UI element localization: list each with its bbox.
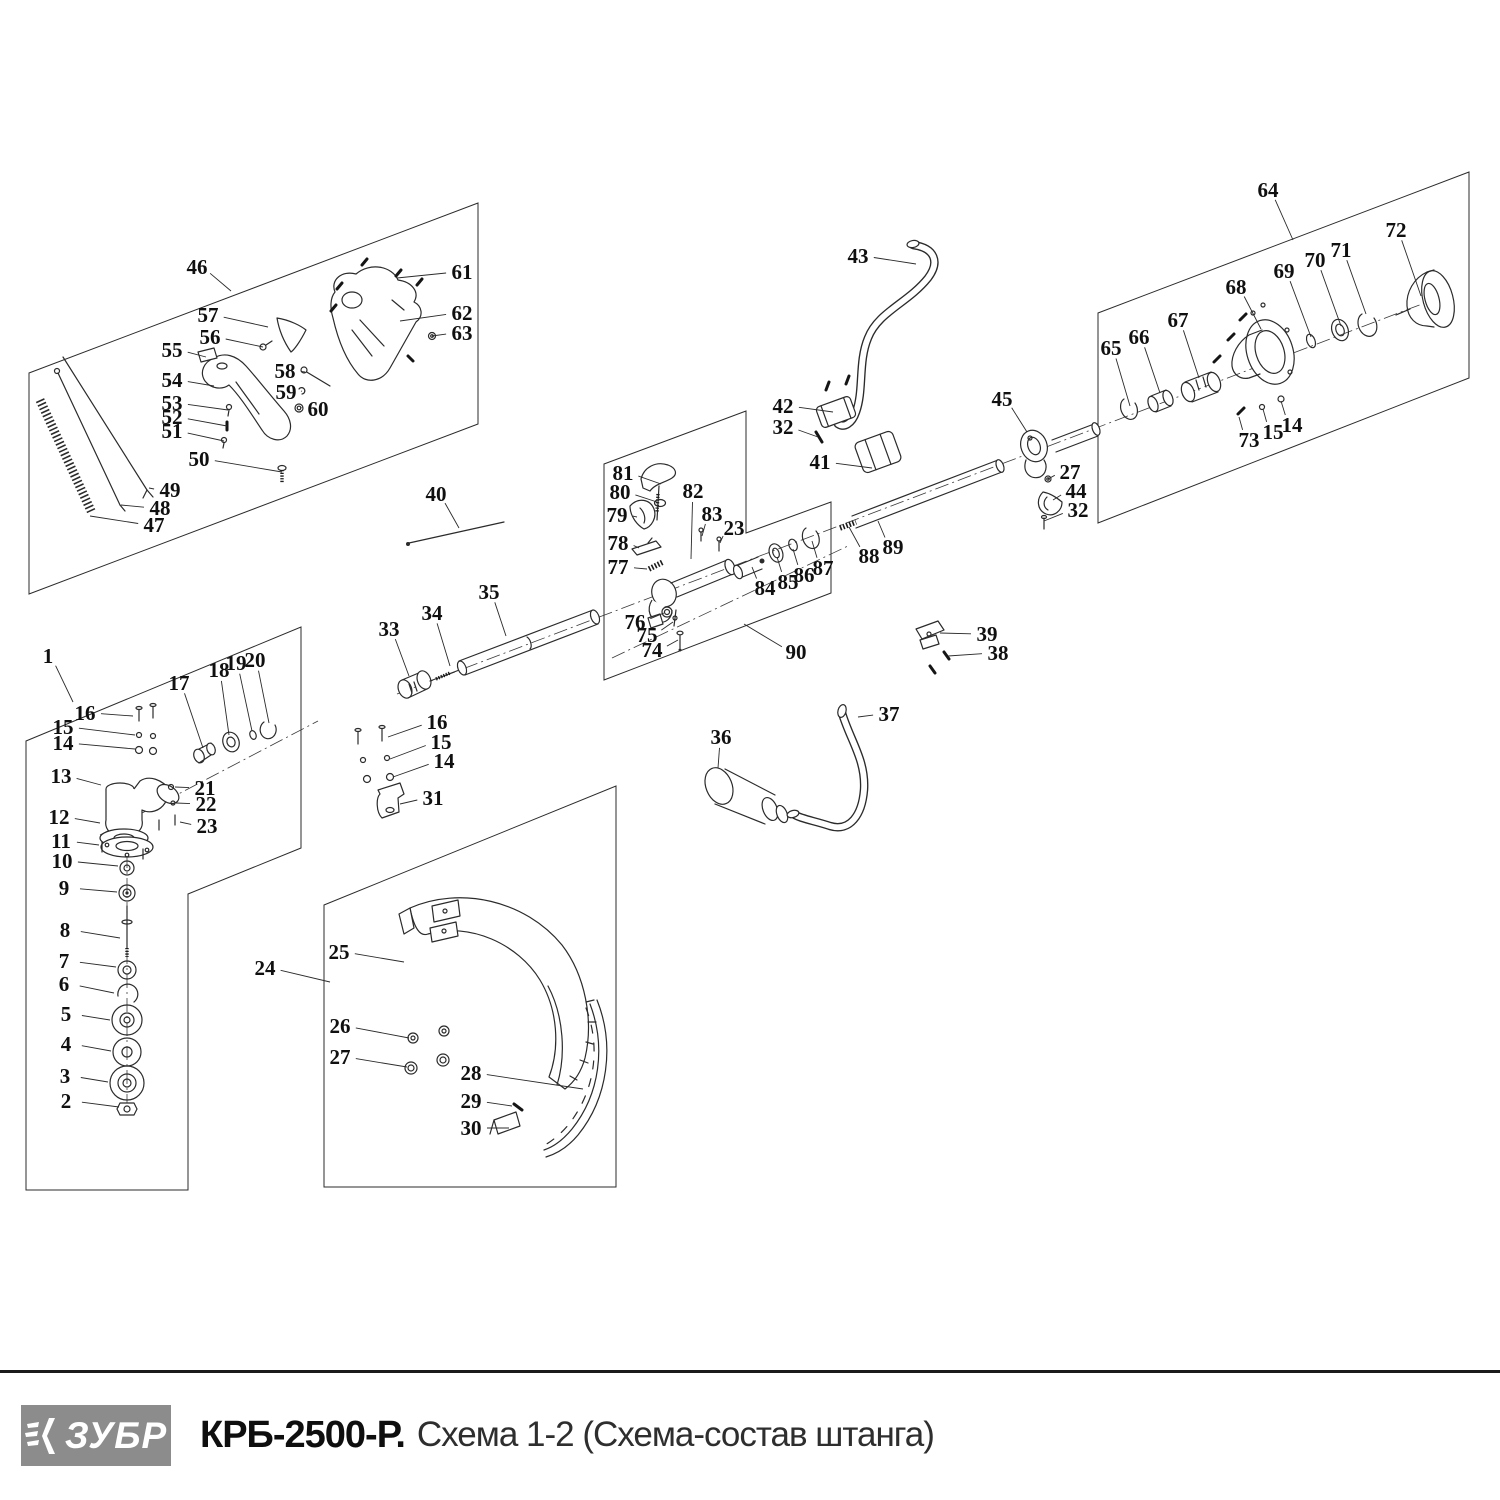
leader-line-18	[221, 681, 229, 735]
leader-line-27	[356, 1059, 407, 1067]
leader-line-23	[180, 822, 191, 824]
part-label-23: 23	[197, 814, 218, 838]
part-label-14: 14	[1282, 413, 1304, 437]
leader-line-5	[82, 1016, 110, 1021]
model-name: КРБ-2500-Р.	[200, 1414, 405, 1457]
leader-line-58	[301, 372, 305, 373]
part-label-51: 51	[162, 419, 183, 443]
leader-line-2	[82, 1102, 119, 1107]
leader-line-11	[77, 842, 99, 845]
part-label-70: 70	[1305, 248, 1326, 272]
leader-line-69	[1290, 281, 1311, 337]
part-label-2: 2	[61, 1089, 72, 1113]
leader-line-14	[79, 744, 135, 749]
leader-line-8	[81, 932, 120, 938]
part-label-82: 82	[683, 479, 704, 503]
leader-line-50	[215, 461, 282, 472]
leader-line-1	[56, 666, 73, 702]
leader-line-46	[210, 273, 231, 291]
leader-line-40	[445, 503, 459, 528]
part-label-15: 15	[1263, 420, 1284, 444]
part-label-30: 30	[461, 1116, 482, 1140]
clutch-assembly-sketch	[1121, 267, 1460, 419]
part-label-90: 90	[786, 640, 807, 664]
leader-line-14	[393, 764, 429, 777]
leader-line-61	[397, 273, 446, 278]
leader-line-45	[1012, 408, 1027, 432]
leader-line-24	[281, 970, 330, 982]
leader-line-6	[80, 986, 114, 993]
part-label-32: 32	[1068, 498, 1089, 522]
leader-line-63	[432, 334, 446, 336]
part-label-7: 7	[59, 949, 70, 973]
leader-line-34	[437, 623, 450, 666]
part-label-19: 19	[226, 651, 247, 675]
leader-line-82	[691, 502, 693, 559]
part-label-36: 36	[711, 725, 732, 749]
part-label-41: 41	[810, 450, 831, 474]
part-label-80: 80	[610, 480, 631, 504]
part-label-25: 25	[329, 940, 350, 964]
part-label-43: 43	[848, 244, 869, 268]
leader-line-70	[1321, 270, 1341, 326]
part-label-78: 78	[608, 531, 629, 555]
part-label-6: 6	[59, 972, 70, 996]
part-label-87: 87	[813, 556, 834, 580]
part-label-69: 69	[1274, 259, 1295, 283]
part-label-84: 84	[755, 576, 777, 600]
leader-line-19	[240, 674, 252, 731]
leader-line-74	[667, 640, 678, 646]
leader-line-10	[78, 862, 118, 866]
exploded-parts-diagram: 4661576256635558545953605251504948474064…	[0, 0, 1500, 1370]
part-label-22: 22	[196, 792, 217, 816]
part-label-47: 47	[144, 513, 165, 537]
part-label-46: 46	[187, 255, 208, 279]
leader-line-43	[874, 258, 916, 265]
guard-assembly-sketch	[399, 898, 607, 1157]
leader-line-15	[79, 728, 135, 735]
part-label-40: 40	[426, 482, 447, 506]
leader-line-25	[355, 954, 404, 962]
leader-line-4	[82, 1046, 111, 1051]
leader-line-7	[80, 962, 116, 967]
part-label-77: 77	[608, 555, 629, 579]
part-label-8: 8	[60, 918, 71, 942]
part-label-56: 56	[200, 325, 221, 349]
part-label-16: 16	[75, 701, 96, 725]
leader-line-67	[1183, 330, 1199, 378]
part-label-73: 73	[1239, 428, 1260, 452]
part-label-38: 38	[988, 641, 1009, 665]
part-label-32: 32	[773, 415, 794, 439]
part-label-3: 3	[60, 1064, 71, 1088]
part-label-60: 60	[308, 397, 329, 421]
part-label-26: 26	[330, 1014, 351, 1038]
part-label-24: 24	[255, 956, 277, 980]
leader-line-38	[948, 654, 982, 656]
leader-line-66	[1145, 347, 1160, 393]
part-label-71: 71	[1331, 238, 1352, 262]
part-label-4: 4	[61, 1032, 72, 1056]
part-label-65: 65	[1101, 336, 1122, 360]
part-label-83: 83	[702, 502, 723, 526]
page: 4661576256635558545953605251504948474064…	[0, 0, 1500, 1500]
part-label-31: 31	[423, 786, 444, 810]
part-label-89: 89	[883, 535, 904, 559]
part-label-66: 66	[1129, 325, 1150, 349]
zubr-logo-icon	[25, 1416, 59, 1456]
leader-line-49	[149, 488, 154, 489]
part-label-64: 64	[1258, 178, 1280, 202]
part-label-14: 14	[434, 749, 456, 773]
footer-divider	[0, 1370, 1500, 1373]
part-label-79: 79	[607, 503, 628, 527]
part-label-12: 12	[49, 805, 70, 829]
brand-logo: ЗУБР	[21, 1405, 171, 1466]
part-label-72: 72	[1386, 218, 1407, 242]
scheme-title: Схема 1-2 (Схема-состав штанга)	[417, 1415, 934, 1455]
diagram-caption: КРБ-2500-Р. Схема 1-2 (Схема-состав штан…	[200, 1404, 934, 1466]
part-label-28: 28	[461, 1061, 482, 1085]
part-label-57: 57	[198, 303, 219, 327]
leader-line-26	[356, 1028, 409, 1038]
leader-line-3	[81, 1078, 108, 1083]
leader-line-64	[1275, 200, 1293, 240]
part-labels-layer: 4661576256635558545953605251504948474064…	[43, 178, 1421, 1140]
leader-line-16	[101, 714, 133, 716]
part-label-34: 34	[422, 601, 444, 625]
leader-line-31	[400, 800, 417, 804]
leader-line-56	[226, 339, 263, 347]
leader-line-16	[388, 725, 422, 737]
leader-line-22	[176, 803, 190, 804]
part-label-55: 55	[162, 338, 183, 362]
leader-line-77	[634, 568, 647, 569]
leader-line-65	[1116, 359, 1130, 407]
leader-line-20	[259, 671, 270, 723]
leader-line-12	[75, 819, 100, 823]
part-label-63: 63	[452, 321, 473, 345]
part-label-74: 74	[642, 638, 664, 662]
leader-line-47	[90, 516, 138, 524]
part-label-68: 68	[1226, 275, 1247, 299]
part-label-86: 86	[794, 563, 815, 587]
leader-line-39	[940, 633, 971, 634]
part-label-9: 9	[59, 876, 70, 900]
part-label-45: 45	[992, 387, 1013, 411]
part-label-35: 35	[479, 580, 500, 604]
leader-line-51	[188, 433, 224, 441]
leader-line-17	[185, 693, 204, 748]
leader-line-48	[121, 505, 144, 507]
leader-line-52	[188, 419, 227, 426]
part-label-29: 29	[461, 1089, 482, 1113]
leader-line-29	[487, 1102, 512, 1106]
part-label-13: 13	[51, 764, 72, 788]
leader-line-37	[858, 715, 873, 717]
part-label-67: 67	[1168, 308, 1189, 332]
part-label-1: 1	[43, 644, 54, 668]
leader-line-35	[495, 602, 506, 636]
part-label-23: 23	[724, 516, 745, 540]
part-label-14: 14	[53, 731, 75, 755]
brand-logo-text: ЗУБР	[65, 1417, 167, 1454]
part-label-33: 33	[379, 617, 400, 641]
leader-line-53	[188, 404, 228, 410]
leader-line-21	[175, 787, 189, 788]
part-label-50: 50	[189, 447, 210, 471]
leader-line-90	[744, 624, 782, 647]
leader-line-33	[395, 639, 409, 676]
leader-line-36	[718, 748, 720, 768]
leader-line-9	[80, 889, 117, 892]
part-label-61: 61	[452, 260, 473, 284]
part-label-88: 88	[859, 544, 880, 568]
part-label-59: 59	[276, 380, 297, 404]
leader-line-57	[224, 317, 268, 327]
part-label-37: 37	[879, 702, 900, 726]
leader-line-15	[390, 746, 426, 760]
part-label-10: 10	[52, 849, 73, 873]
throttle-linkage-sketch	[630, 464, 819, 652]
leader-line-13	[77, 778, 101, 785]
part-label-17: 17	[169, 671, 190, 695]
leader-line-71	[1347, 260, 1366, 314]
part-label-54: 54	[162, 368, 184, 392]
part-label-27: 27	[330, 1045, 351, 1069]
part-label-5: 5	[61, 1002, 72, 1026]
part-label-20: 20	[245, 648, 266, 672]
